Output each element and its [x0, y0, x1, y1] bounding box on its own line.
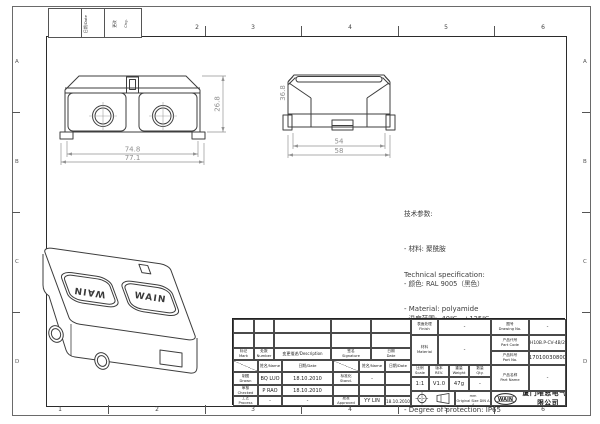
side-outline — [288, 75, 390, 127]
part-code-label: 产品代号Part Code — [491, 335, 529, 351]
finish-value: - — [438, 319, 491, 335]
grid-row-label: A — [15, 59, 19, 65]
part-no-label: 产品料号Part No. — [491, 351, 529, 365]
spec-en-line: - Material: polyamide — [404, 304, 557, 315]
front-view-drawing: 74.8 77.1 26.8 — [55, 60, 235, 166]
grid-row-label: D — [583, 359, 587, 365]
front-dim-height: 26.8 — [214, 96, 222, 112]
approved-date: 18.10.2010 — [385, 396, 411, 406]
projection-cone-icon — [437, 394, 449, 404]
grid-tick — [301, 405, 302, 414]
date-header: 日期/Date — [282, 360, 333, 372]
grid-tick — [494, 26, 495, 36]
svg-text:WAIN: WAIN — [498, 397, 513, 403]
grid-tick — [205, 26, 206, 36]
scale-label: 比例Scale — [411, 365, 429, 377]
grid-col-label: 3 — [251, 406, 255, 413]
grid-col-label: 4 — [348, 406, 352, 413]
grid-tick — [398, 26, 399, 36]
process-name: - — [258, 396, 282, 406]
dimension-notes: All Dimensions in mm Original Size DIN A… — [455, 391, 491, 406]
rev-number-header: 处数Number — [254, 348, 274, 360]
corner-revision-strip: 日期/Date 更改 Chg. — [48, 8, 142, 38]
strip-divider — [104, 9, 105, 37]
drawing-no-label: 图号Drawing No. — [491, 319, 529, 335]
side-dim-height: 36.8 — [279, 85, 287, 101]
grid-row-label: A — [583, 59, 587, 65]
grid-tick — [398, 405, 399, 414]
grid-tick — [12, 112, 20, 113]
side-top-band — [296, 77, 382, 83]
standard-value: - — [359, 372, 385, 385]
front-dim-inner: 74.8 — [125, 146, 141, 154]
grid-tick — [12, 312, 20, 313]
side-view-drawing: 54 58 36.8 — [278, 60, 400, 160]
grid-row-label: D — [15, 359, 19, 365]
grid-tick — [12, 212, 20, 213]
drawn-date: 18.10.2010 — [282, 372, 333, 385]
rev-date-header: 日期Date — [371, 348, 411, 360]
spec-cn-title: 技术参数: — [404, 209, 529, 221]
company-cell: WAIN 厦门唯恩电气有限公司 XIAMEN WAIN ELECTRICAL C… — [491, 391, 566, 406]
rev-mark-header: 标记Mark — [233, 348, 254, 360]
strip-chg-label-cn: 更改 — [112, 20, 118, 28]
grid-col-label: 4 — [348, 24, 352, 31]
qty-value: - — [469, 377, 491, 391]
grid-col-label: 2 — [195, 24, 199, 31]
grid-tick — [582, 312, 590, 313]
strip-divider — [81, 9, 82, 37]
front-dim-outer: 77.1 — [125, 154, 141, 162]
grid-col-label: 6 — [541, 24, 545, 31]
grid-row-label: C — [15, 259, 19, 265]
checked-name: P RAO — [258, 385, 282, 396]
drawing-sheet: 2 3 4 5 6 1 2 3 4 5 6 A B C D A B C D 日期… — [0, 0, 600, 424]
scale-value: 1:1 — [411, 377, 429, 391]
material-label: 材料Material — [411, 335, 438, 365]
rev-signature-header: 签名Signature — [331, 348, 371, 360]
side-dim-outer: 58 — [335, 147, 344, 155]
iso-tab — [160, 350, 182, 367]
wain-logo: WAIN — [494, 393, 517, 405]
drawn-label: 制图Drawn — [233, 372, 258, 385]
strip-date-label: 日期/Date — [83, 15, 89, 33]
weight-label: 重量Weight — [449, 365, 469, 377]
part-no-value: 1170100308002 — [529, 351, 566, 365]
part-name-value: - — [529, 365, 566, 391]
grid-row-label: C — [583, 259, 587, 265]
grid-row-label: B — [15, 159, 19, 165]
qty-label: 数量Qty. — [469, 365, 491, 377]
projection-symbols — [411, 391, 455, 406]
spec-en-title: Technical specification: — [404, 270, 557, 281]
approved-name: YY LIN — [359, 396, 385, 406]
front-foot-left — [60, 132, 73, 139]
corner-hatch — [289, 77, 390, 85]
rev-description-header: 变更描述/Description — [274, 348, 331, 360]
grid-tick — [582, 212, 590, 213]
process-date: - — [282, 396, 333, 406]
isometric-view-drawing: WAIN WAIN — [40, 240, 225, 408]
name-header: 姓名/Name — [258, 360, 282, 372]
approved-label: 批准Approved — [333, 396, 359, 406]
grid-tick — [582, 112, 590, 113]
company-name-cn: 厦门唯恩电气有限公司 — [519, 391, 566, 406]
front-foot-right — [192, 132, 205, 139]
grid-tick — [301, 26, 302, 36]
front-outline — [65, 76, 200, 132]
weight-value: 47g — [449, 377, 469, 391]
strip-chg-label-en: Chg. — [123, 19, 128, 28]
drawn-name: BQ LUO — [258, 372, 282, 385]
finish-label: 表面处理Finish — [411, 319, 438, 335]
grid-col-label: 5 — [444, 24, 448, 31]
rev-label: 版本REV. — [429, 365, 449, 377]
grid-col-label: 3 — [251, 24, 255, 31]
centerlines — [89, 102, 177, 130]
part-name-label: 产品名称Part Name — [491, 365, 529, 391]
standard-label: 标准化Stand. — [333, 372, 359, 385]
drawing-no-value: - — [529, 319, 566, 335]
part-code-value: H10B.P-CV-4B/2 — [529, 335, 566, 351]
checked-date: 18.10.2010 — [282, 385, 333, 396]
grid-row-label: B — [583, 159, 587, 165]
rev-value: V1.0 — [429, 377, 449, 391]
process-label: 工艺Process — [233, 396, 258, 406]
spec-en-line: - Degree of protection: IP65 — [404, 405, 557, 416]
name-header: 姓名/Name — [359, 360, 385, 372]
date-header: 日期/Date — [385, 360, 411, 372]
checked-label: 审核Checked — [233, 385, 258, 396]
material-value: - — [438, 335, 491, 365]
side-dim-inner: 54 — [335, 138, 344, 146]
title-block: 标记Mark 处数Number 变更描述/Description 签名Signa… — [232, 318, 565, 405]
front-panel-left — [68, 93, 126, 131]
